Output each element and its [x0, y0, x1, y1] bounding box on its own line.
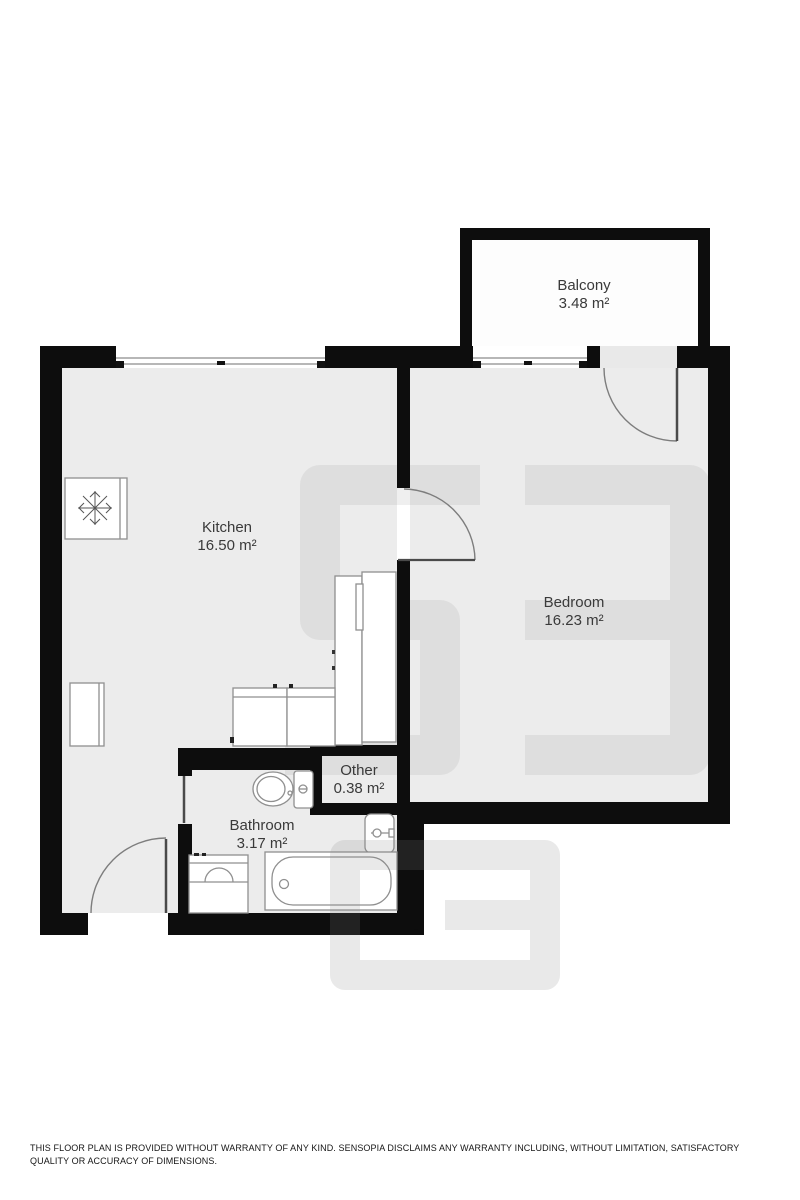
- bathroom-label: Bathroom 3.17 m²: [229, 817, 294, 852]
- balcony-label: Balcony 3.48 m²: [557, 277, 610, 312]
- wall-kitchen-bedroom-upper: [397, 368, 410, 488]
- bathroom-area: 3.17 m²: [229, 835, 294, 853]
- kitchen-area: 16.50 m²: [197, 537, 256, 555]
- wall-bath-door-jamb: [178, 748, 192, 776]
- wall-balcony-left: [460, 228, 472, 346]
- floor-plan-drawing: [0, 0, 800, 1200]
- kitchen-base-cabinets: [230, 684, 335, 746]
- fridge: [65, 478, 127, 539]
- bedroom-window: [473, 346, 587, 368]
- vanity-sink: [189, 853, 248, 913]
- wall-bedroom-bottom: [400, 802, 730, 824]
- floor-plan-page: Balcony 3.48 m² Kitchen 16.50 m² Bedroom…: [0, 0, 800, 1200]
- bedroom-area: 16.23 m²: [544, 612, 605, 630]
- balcony-door-threshold: [600, 346, 677, 370]
- other-area: 0.38 m²: [334, 780, 385, 798]
- balcony-area: 3.48 m²: [557, 295, 610, 313]
- wall-right: [708, 346, 730, 824]
- wall-top-3: [587, 346, 600, 368]
- kitchen-tall-unit: [332, 572, 396, 745]
- kitchen-name: Kitchen: [202, 519, 252, 536]
- wall-bottom-1: [40, 913, 88, 935]
- wall-kitchen-bedroom-lower: [397, 560, 410, 747]
- bathroom-name: Bathroom: [229, 817, 294, 834]
- wall-left: [40, 346, 62, 935]
- bedroom-name: Bedroom: [544, 594, 605, 611]
- wall-other-bottom: [310, 803, 410, 815]
- wall-top-2: [325, 346, 473, 368]
- kitchen-label: Kitchen 16.50 m²: [197, 519, 256, 554]
- side-cabinet: [70, 683, 104, 746]
- other-name: Other: [340, 762, 378, 779]
- wall-other-right: [397, 747, 410, 807]
- bedroom-label: Bedroom 16.23 m²: [544, 594, 605, 629]
- kitchen-window: [116, 346, 325, 368]
- wall-other-top: [322, 745, 410, 756]
- balcony-name: Balcony: [557, 277, 610, 294]
- other-label: Other 0.38 m²: [334, 762, 385, 797]
- wall-balcony-top: [460, 228, 710, 240]
- disclaimer-text: THIS FLOOR PLAN IS PROVIDED WITHOUT WARR…: [30, 1142, 775, 1168]
- toilet: [253, 771, 313, 808]
- fridge-snowflake-icon: [78, 491, 112, 525]
- wall-balcony-right: [698, 228, 710, 346]
- wall-bathroom-top: [178, 748, 322, 770]
- wall-bottom-2: [168, 913, 424, 935]
